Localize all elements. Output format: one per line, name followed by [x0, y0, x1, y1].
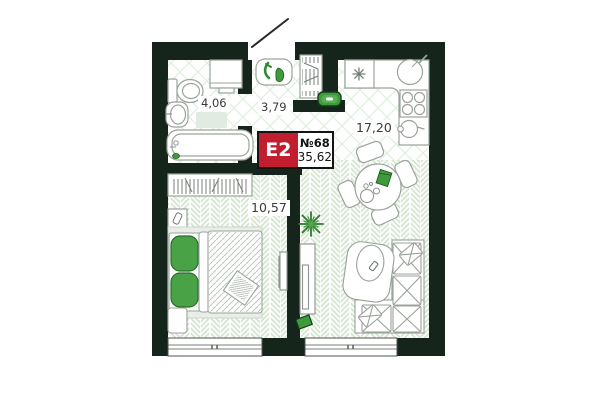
living-window [305, 338, 397, 356]
bathtub-icon [167, 130, 253, 160]
wall-bottom-pier [262, 338, 305, 356]
wall-left [152, 42, 168, 356]
bedroom-tv-icon [279, 252, 287, 290]
sink-icon [166, 102, 188, 127]
bedroom-window [168, 338, 262, 356]
shoes-icon [256, 59, 292, 85]
dining-table-icon [355, 164, 401, 210]
closet-icon [300, 55, 322, 98]
entrance-door-leaf [252, 19, 288, 47]
bathroom-area-label: 4,06 [198, 96, 230, 111]
sofa-cushion [393, 306, 421, 332]
stove-icon [400, 90, 427, 117]
wall-bedroom-living [287, 163, 300, 338]
kitchen-sink-icon [345, 60, 374, 88]
floor-plan-drawing [0, 0, 600, 400]
plant-icon [299, 212, 323, 236]
wardrobe-icon [168, 174, 252, 196]
sofa-cushion [393, 276, 421, 305]
unit-number: №68 [300, 136, 330, 150]
unit-total-area: 35,62 [298, 150, 332, 164]
pillow-icon [171, 273, 198, 307]
wall-top-left [152, 42, 248, 60]
bed-icon [168, 227, 262, 318]
tv-console [300, 244, 315, 314]
floor-plan: 4,06 3,79 17,20 10,57 E2 №68 35,62 [0, 0, 600, 400]
layout-code: E2 [259, 133, 298, 167]
wall-right [429, 42, 445, 356]
wall-bottom-right [397, 338, 445, 356]
living-tv-icon [303, 265, 309, 309]
bench-icon [318, 92, 341, 106]
hallway-area-label: 3,79 [258, 100, 290, 115]
unit-badge: E2 №68 35,62 [257, 131, 334, 169]
lounge-chair-icon [341, 240, 396, 304]
bedroom-bench-icon [168, 308, 187, 333]
bath-mat [196, 112, 227, 128]
washing-machine-icon [210, 60, 242, 93]
bedroom-area-label: 10,57 [248, 200, 290, 216]
nightstand-icon [168, 209, 187, 228]
pillow-icon [171, 236, 198, 271]
kitchen-area-label: 17,20 [353, 120, 395, 136]
